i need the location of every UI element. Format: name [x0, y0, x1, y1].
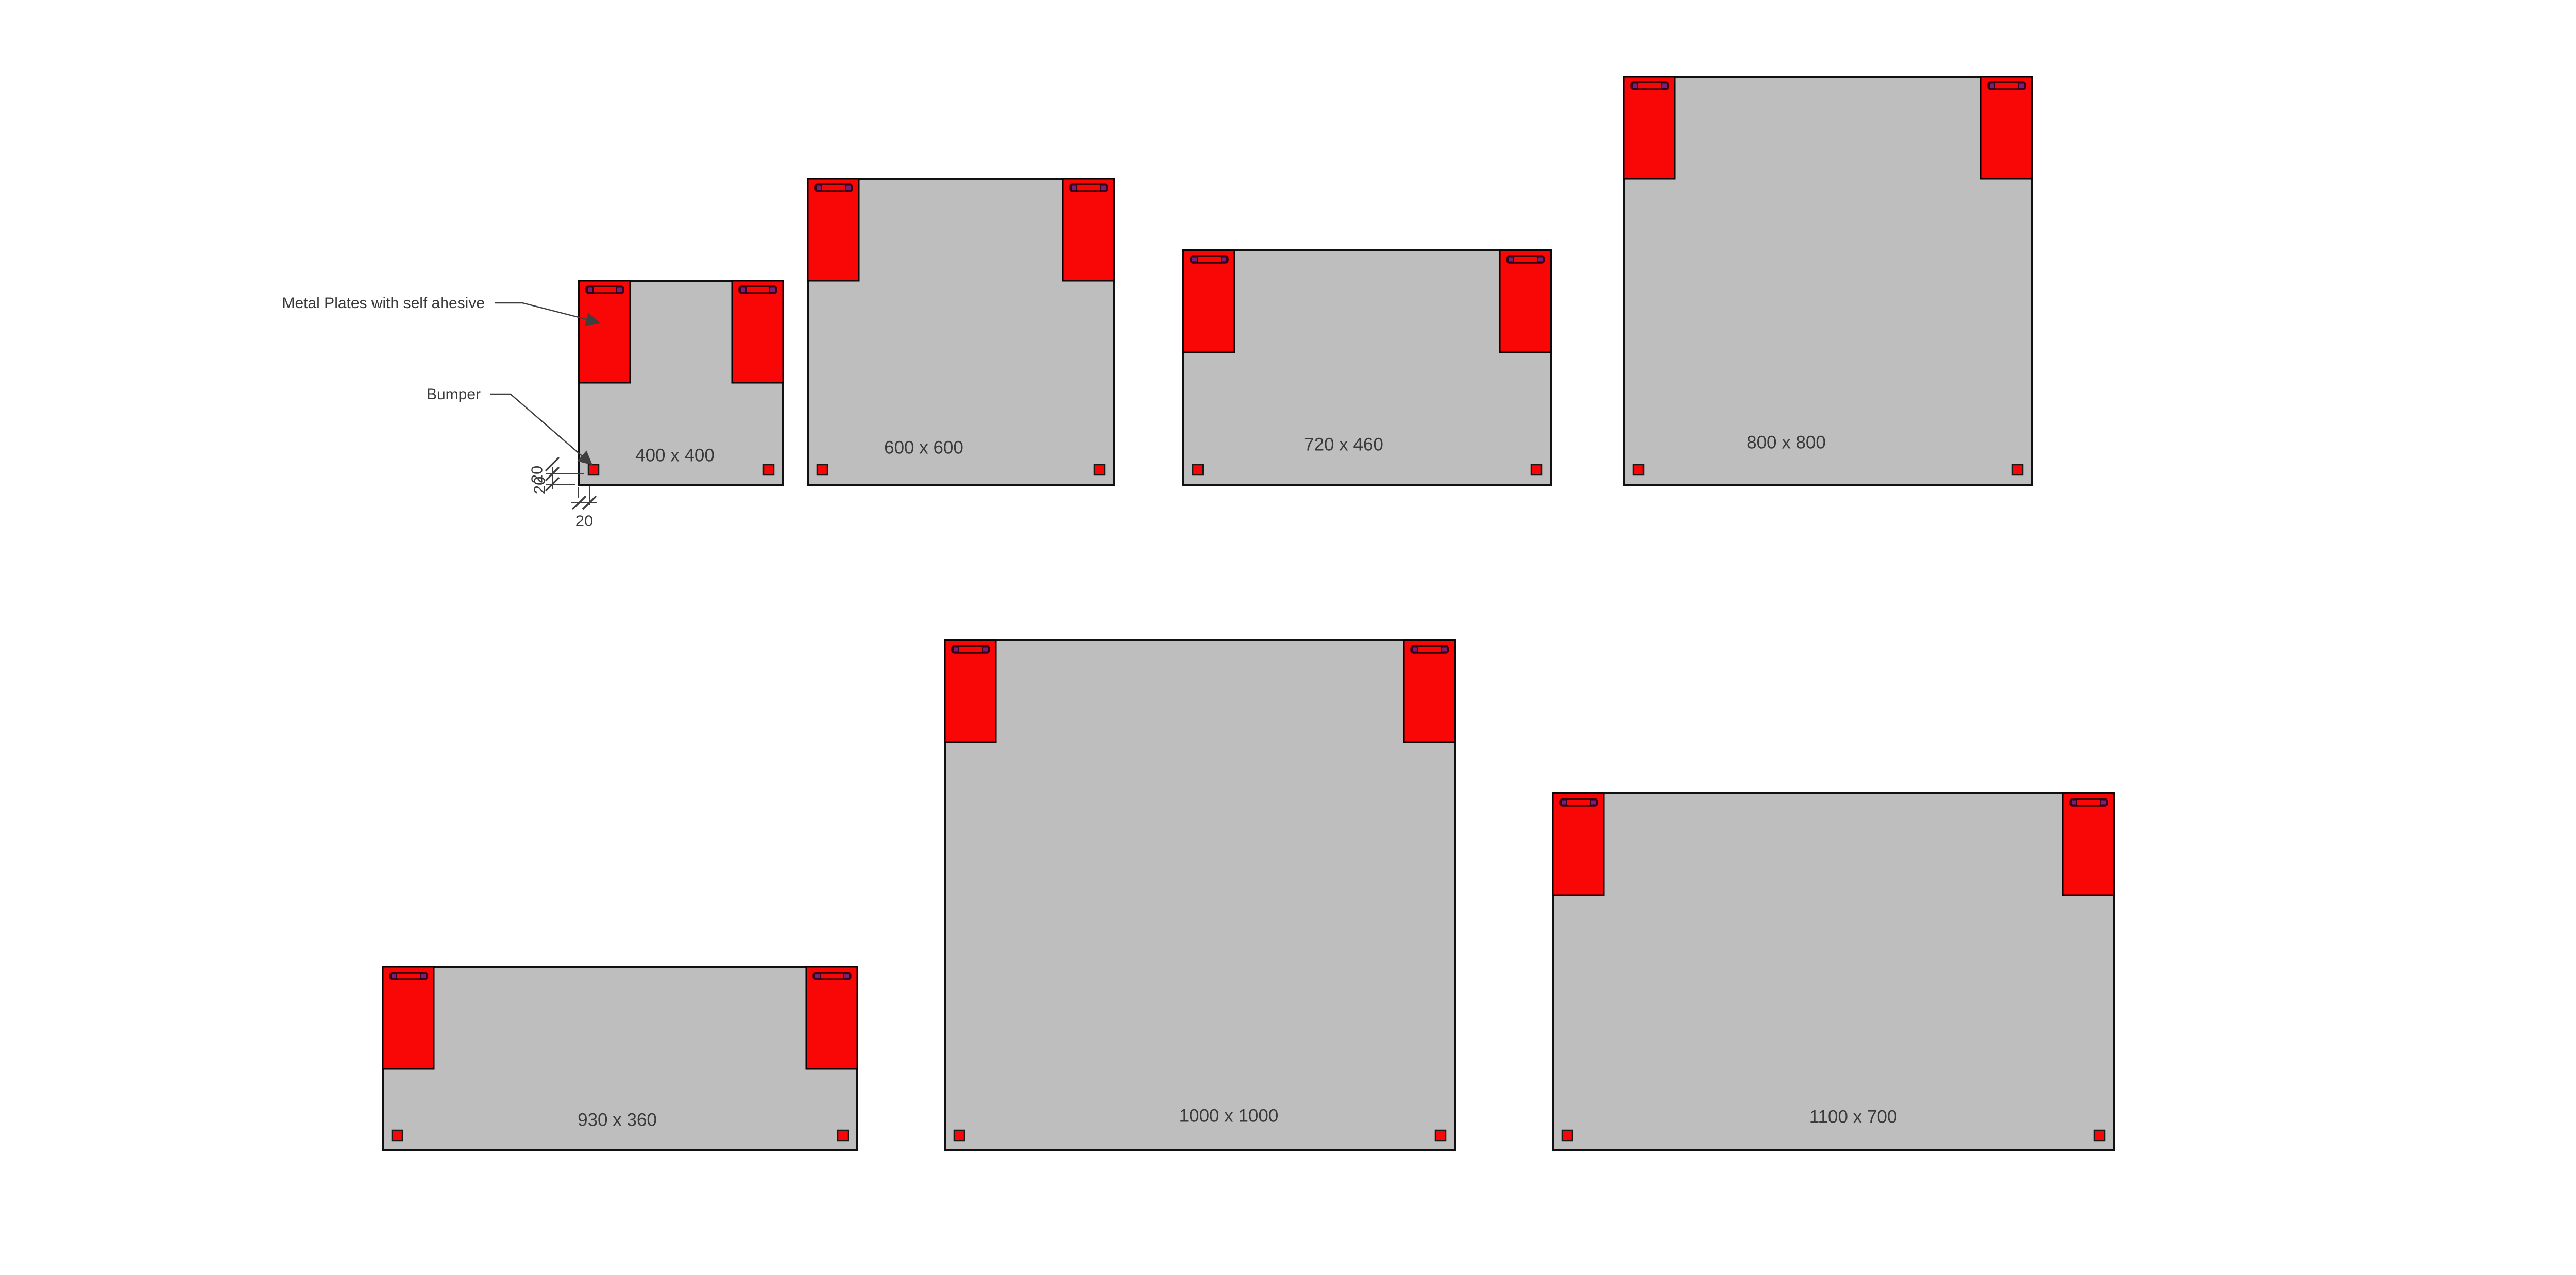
metal-plate-body [2063, 793, 2114, 895]
slot-pad-left [1412, 647, 1418, 652]
slot-pad-right [617, 287, 622, 293]
slot-pad-right [1221, 257, 1227, 262]
panel-size-label: 800 x 800 [1747, 433, 1826, 453]
metal-plate-left [945, 640, 996, 742]
slot-pad-right [1590, 800, 1596, 805]
slot-pad-left [587, 287, 593, 293]
slot-pad-right [844, 974, 850, 979]
panel-size-label: 1100 x 700 [1809, 1107, 1897, 1127]
slot-pad-right [2019, 83, 2024, 89]
slot-pad-right [770, 287, 775, 293]
slot-pad-left [815, 974, 820, 979]
bumper-left [817, 465, 827, 475]
bumper-left [1562, 1130, 1572, 1141]
bumper-right [838, 1130, 848, 1141]
metal-plate-body [806, 967, 857, 1069]
metal-plate-right [1500, 250, 1551, 352]
slot-pad-right [1537, 257, 1543, 262]
metal-plate-left [808, 179, 859, 281]
bumper-right [764, 465, 774, 475]
bumper-label: Bumper [427, 386, 481, 403]
metal-plate-body [1981, 77, 2032, 179]
bumper-left [1633, 465, 1643, 475]
slot-pad-right [420, 974, 426, 979]
slot-pad-left [1192, 257, 1197, 262]
slot-pad-left [740, 287, 746, 293]
panel-body [945, 640, 1455, 1150]
panel-800x800: 800 x 800 [1624, 77, 2032, 485]
metal-plate-body [579, 281, 630, 383]
metal-plate-body [1500, 250, 1551, 352]
slot-pad-left [1632, 83, 1638, 89]
panel-600x600: 600 x 600 [808, 179, 1114, 485]
metal-plate-right [1981, 77, 2032, 179]
metal-plate-right [1063, 179, 1114, 281]
slot-pad-right [845, 185, 851, 191]
metal-plate-left [579, 281, 630, 383]
slot-pad-left [816, 185, 822, 191]
bumper-right [1094, 465, 1105, 475]
metal-plate-body [1553, 793, 1604, 895]
slot-pad-right [1662, 83, 1667, 89]
slot-pad-right [982, 647, 988, 652]
slot-pad-right [1442, 647, 1447, 652]
diagram-canvas: 400 x 400600 x 600720 x 460800 x 800930 … [0, 0, 2576, 1272]
panel-size-label: 400 x 400 [635, 446, 715, 466]
slot-pad-right [2100, 800, 2106, 805]
metal-plate-right [732, 281, 783, 383]
bumper-right [1435, 1130, 1446, 1141]
slot-pad-right [1100, 185, 1106, 191]
metal-plate-right [2063, 793, 2114, 895]
dim-label-horizontal: 20 [575, 512, 593, 530]
metal-plate-body [808, 179, 859, 281]
panel-size-label: 1000 x 1000 [1179, 1106, 1279, 1126]
panel-body [1624, 77, 2032, 485]
bumper-left [1193, 465, 1203, 475]
slot-pad-left [1989, 83, 1995, 89]
panel-720x460: 720 x 460 [1183, 250, 1551, 485]
panel-400x400: 400 x 400 [579, 281, 783, 485]
panel-size-label: 720 x 460 [1304, 435, 1383, 455]
panel-size-label: 600 x 600 [884, 438, 963, 458]
metal-plate-body [1624, 77, 1675, 179]
slot-pad-left [1561, 800, 1567, 805]
metal-plate-body [1404, 640, 1455, 742]
bumper-right [2094, 1130, 2105, 1141]
metal-plate-right [1404, 640, 1455, 742]
slot-pad-left [1508, 257, 1514, 262]
panel-body [1553, 793, 2114, 1150]
panel-1000x1000: 1000 x 1000 [945, 640, 1455, 1150]
bumper-left [954, 1130, 964, 1141]
metal-plate-left [1624, 77, 1675, 179]
metal-plate-left [1553, 793, 1604, 895]
metal-plate-body [383, 967, 434, 1069]
panel-size-label: 930 x 360 [578, 1110, 657, 1130]
bumper-right [2012, 465, 2023, 475]
metal-plate-body [732, 281, 783, 383]
panel-930x360: 930 x 360 [383, 967, 857, 1150]
panel-1100x700: 1100 x 700 [1553, 793, 2114, 1150]
dim-label-vertical: 20 [531, 477, 549, 494]
metal-plate-body [945, 640, 996, 742]
metal-plate-right [806, 967, 857, 1069]
metal-plate-left [383, 967, 434, 1069]
slot-pad-left [953, 647, 959, 652]
metal-plate-body [1183, 250, 1234, 352]
bumper-left [392, 1130, 402, 1141]
bumper-left [588, 465, 599, 475]
metal-plate-body [1063, 179, 1114, 281]
metal-plate-left [1183, 250, 1234, 352]
metal-plates-label: Metal Plates with self ahesive [282, 295, 485, 312]
slot-pad-left [2071, 800, 2077, 805]
slot-pad-left [391, 974, 397, 979]
slot-pad-left [1071, 185, 1077, 191]
bumper-right [1531, 465, 1541, 475]
